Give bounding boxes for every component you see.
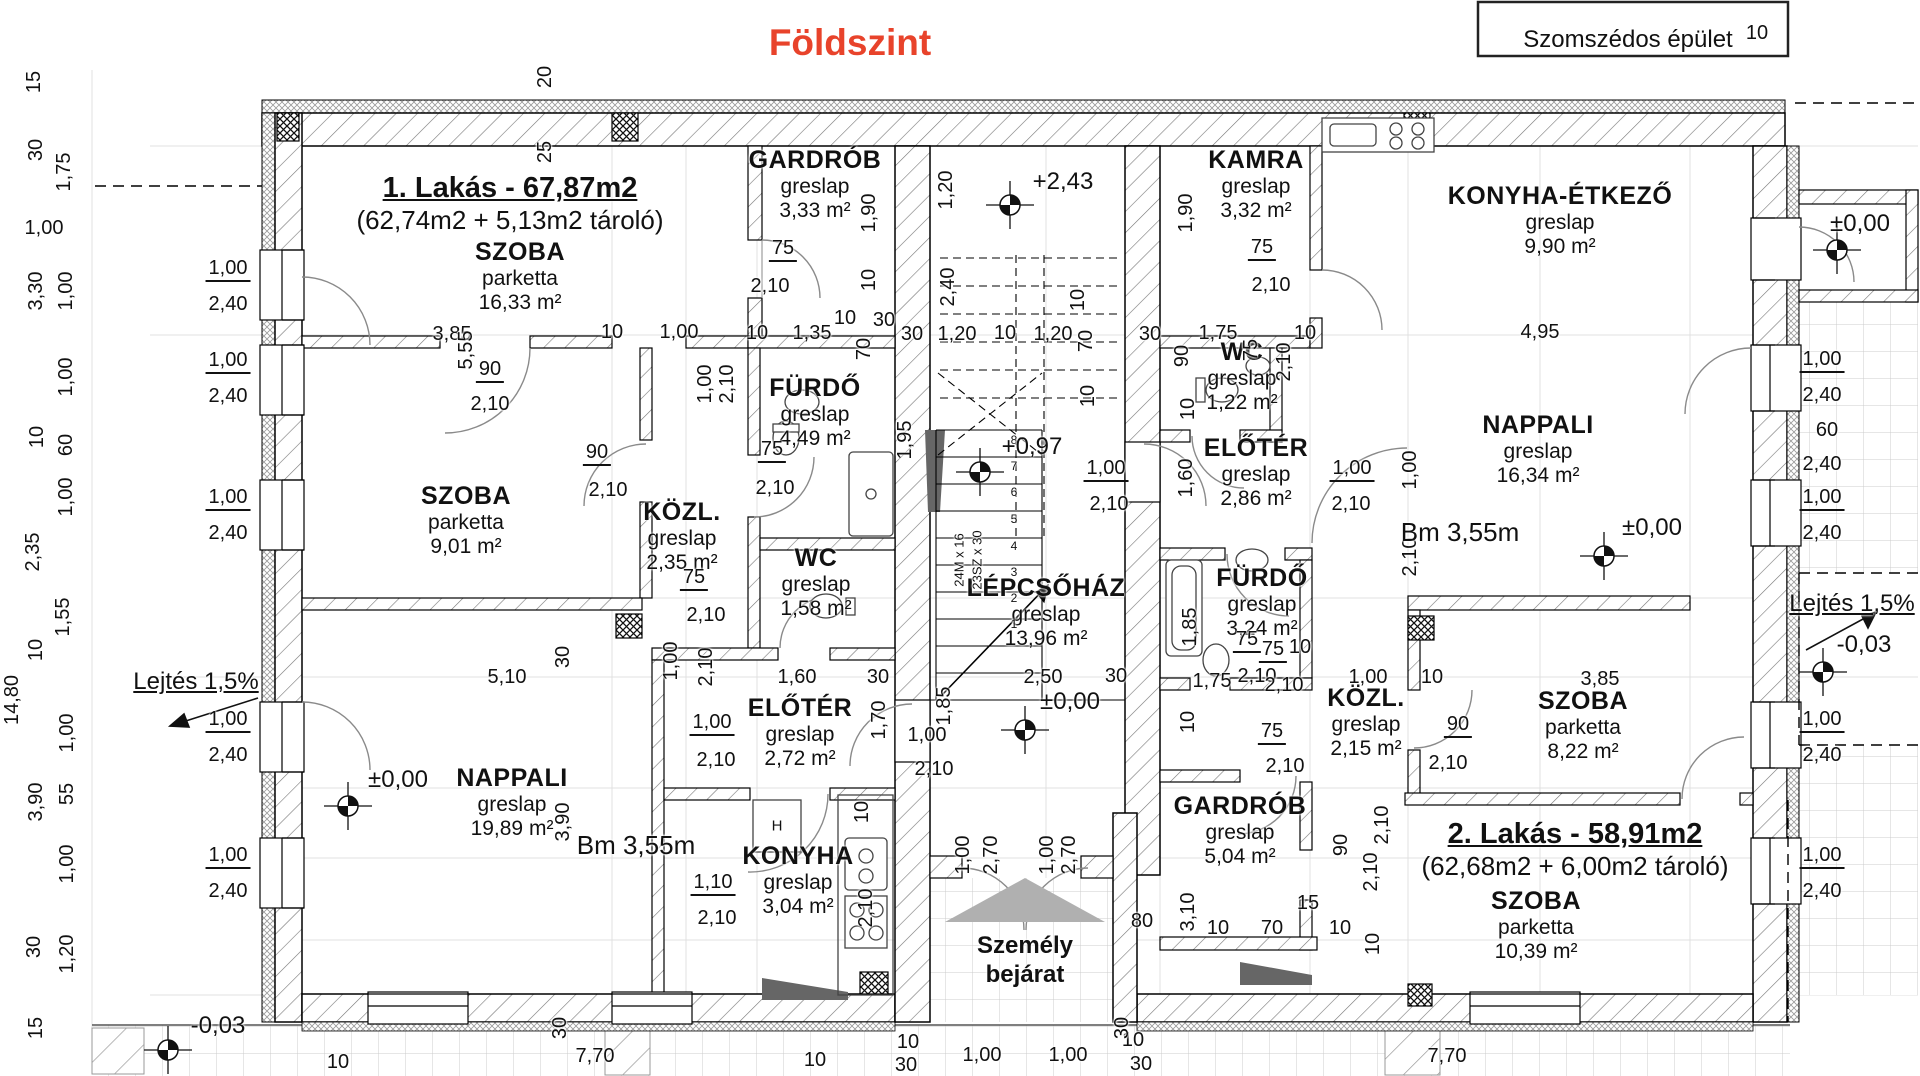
level-label: ±0,00 [368, 766, 428, 794]
slope-label-right: Lejtés 1,5% [1789, 590, 1914, 618]
dim-label: 14,80 [2, 675, 22, 725]
dim-label: 1,85 [1180, 608, 1200, 647]
dim-label: 1,75 [1199, 323, 1238, 343]
dim-label: 20 [535, 66, 555, 88]
dim-label: 15 [26, 1017, 46, 1039]
dim-label: 1,00 [206, 258, 251, 282]
level-label: ±0,00 [1622, 514, 1682, 542]
dim-label: 2,10 [717, 365, 737, 404]
dim-label: 90 [1444, 714, 1472, 738]
dim-label: 55 [57, 783, 77, 805]
slope-label-left: Lejtés 1,5% [133, 668, 258, 696]
apartment-2-detail: (62,68m2 + 6,00m2 tároló) [1421, 851, 1728, 882]
dim-label: 1,00 [1084, 458, 1129, 482]
dim-label: 30 [873, 310, 895, 330]
dim-label: 25 [535, 141, 555, 163]
dim-label: 75 [769, 238, 797, 262]
dim-label: 75 [758, 439, 786, 463]
dim-label: 1,00 [695, 365, 715, 404]
dim-label: 2,10 [1372, 806, 1392, 845]
room-label-szoba: SZOBAparketta8,22 m² [1538, 687, 1628, 764]
dim-label: 7,70 [576, 1046, 615, 1066]
room-label-nappali: NAPPALIgreslap19,89 m² [456, 764, 567, 841]
dim-label: 2,40 [938, 268, 958, 307]
dim-label: 10 [804, 1050, 826, 1070]
room-label-konyha-tkez-: KONYHA-ÉTKEZŐgreslap9,90 m² [1448, 182, 1673, 259]
dim-label: 2,10 [697, 750, 736, 770]
dim-label: 10 [834, 308, 856, 328]
room-label-f-rd-: FÜRDŐgreslap3,24 m² [1216, 564, 1307, 641]
dim-label: 75 [680, 567, 708, 591]
dim-label: 24M x 16 [953, 533, 966, 586]
dim-label: 90 [583, 442, 611, 466]
dim-label: 1,60 [1176, 459, 1196, 498]
dim-label: 30 [550, 1017, 570, 1039]
dim-label: 30 [895, 1055, 917, 1075]
dim-label: 1,00 [25, 218, 64, 238]
apartment-1-detail: (62,74m2 + 5,13m2 tároló) [356, 205, 663, 236]
survey-marker-icon [324, 782, 372, 830]
dim-label: 1,75 [54, 153, 74, 192]
dim-label: 2,10 [1429, 753, 1468, 773]
room-label-nappali: NAPPALIgreslap16,34 m² [1482, 411, 1593, 488]
room-label-szoba: SZOBAparketta9,01 m² [421, 482, 511, 559]
dim-label: 2,10 [1266, 756, 1305, 776]
dim-label: 10 [1294, 323, 1316, 343]
dim-label: 1,90 [859, 194, 879, 233]
dim-label: 30 [1139, 324, 1161, 344]
dim-label: 10 [1068, 289, 1088, 311]
dim-label: 5 [1011, 513, 1018, 525]
dim-label: 2,10 [1090, 494, 1129, 514]
dim-label: 5,55 [456, 331, 476, 370]
dim-label: 70 [854, 338, 874, 360]
dim-label: 1,20 [938, 324, 977, 344]
dim-label: 10 [1078, 385, 1098, 407]
dim-label: 4 [1011, 540, 1018, 552]
dim-label: 1,00 [57, 845, 77, 884]
dim-label: 2 [1011, 592, 1018, 604]
dim-label: 10 [1421, 667, 1443, 687]
dim-label: 30 [1130, 1054, 1152, 1074]
dim-label: 7,70 [1428, 1046, 1467, 1066]
dim-label: 2,10 [856, 889, 876, 928]
dim-label: 4,95 [1521, 322, 1560, 342]
dim-label: 1,00 [57, 714, 77, 753]
dim-label: 75 [1233, 629, 1261, 653]
dim-label: 2,10 [687, 605, 726, 625]
dim-label: 2,10 [589, 480, 628, 500]
level-label: +2,43 [1033, 168, 1094, 196]
dim-label: 90 [476, 359, 504, 383]
dim-label: Bm 3,55m [1401, 519, 1520, 545]
room-label-k-zl-: KÖZL.greslap2,35 m² [643, 498, 721, 575]
dim-label: 1,70 [869, 701, 889, 740]
level-label: ±0,00 [1040, 688, 1100, 716]
dim-label: 2,50 [1024, 667, 1063, 687]
room-label-el-t-r: ELŐTÉRgreslap2,72 m² [748, 694, 852, 771]
dim-label: 1,95 [895, 421, 915, 460]
dim-label: 90 [1172, 345, 1192, 367]
dim-label: 3,85 [1581, 669, 1620, 689]
dim-label: Bm 3,55m [577, 832, 696, 858]
dim-label: 2,10 [756, 478, 795, 498]
dim-label: 10 [852, 801, 872, 823]
dim-label: 10 [1178, 711, 1198, 733]
apartment-1-name: 1. Lakás - 67,87m2 [356, 172, 663, 205]
dim-label: 5,10 [488, 667, 527, 687]
dim-label: 1 [1011, 618, 1018, 630]
dim-label: 60 [56, 434, 76, 456]
dim-label: 15 [24, 71, 44, 93]
dim-label: 1,00 [1049, 1045, 1088, 1065]
room-label-k-zl-: KÖZL.greslap2,15 m² [1327, 684, 1405, 761]
dim-label: 1,00 [1800, 487, 1845, 511]
dim-label: 90 [1331, 834, 1351, 856]
dim-label: 1,00 [56, 478, 76, 517]
dim-label: 1,20 [1034, 324, 1073, 344]
room-label-gardr-b: GARDRÓBgreslap5,04 m² [1174, 792, 1307, 869]
dim-label: 1,00 [1800, 845, 1845, 869]
dim-label: 1,85 [934, 687, 954, 726]
level-label: -0,03 [1837, 631, 1892, 659]
dim-label: 1,00 [1800, 709, 1845, 733]
dim-label: 10 [601, 322, 623, 342]
survey-marker-icon [986, 181, 1034, 229]
level-label: ±0,00 [1830, 210, 1890, 238]
survey-marker-icon [1580, 532, 1628, 580]
dim-label: 1,00 [56, 358, 76, 397]
dim-label: 2,40 [209, 294, 248, 314]
entrance-label: Személy bejárat [977, 932, 1073, 990]
dim-label: 1,00 [1800, 349, 1845, 373]
dim-label: 2,10 [471, 394, 510, 414]
dim-label: 1,55 [53, 598, 73, 637]
room-label-szoba: SZOBAparketta10,39 m² [1491, 887, 1581, 964]
dim-label: 2,40 [1803, 523, 1842, 543]
dim-label: 10 [26, 639, 46, 661]
dim-label: 2,40 [209, 523, 248, 543]
dim-label: 1,00 [1037, 836, 1057, 875]
dim-label: 2,10 [696, 648, 716, 687]
dim-label: 10 [1289, 637, 1311, 657]
dim-label: 10 [1363, 933, 1383, 955]
dim-label: 1,00 [56, 272, 76, 311]
dim-label: 30 [867, 667, 889, 687]
dim-label: 2,10 [1265, 675, 1304, 695]
apartment-2-header: 2. Lakás - 58,91m2 (62,68m2 + 6,00m2 tár… [1421, 818, 1728, 882]
dim-label: 2,40 [1803, 881, 1842, 901]
room-label-wc: WCgreslap1,58 m² [780, 544, 851, 621]
dim-label: 7 [1011, 460, 1018, 472]
dim-label: 70 [1076, 330, 1096, 352]
dim-label: 1,20 [57, 935, 77, 974]
room-label-szoba: SZOBAparketta16,33 m² [475, 238, 565, 315]
dim-label: 75 [1241, 339, 1261, 361]
dim-label: 1,00 [690, 712, 735, 736]
dim-label: 1,00 [1349, 667, 1388, 687]
dim-label: 1,75 [1193, 671, 1232, 691]
dim-label: 10 [1207, 918, 1229, 938]
dim-label: 2,70 [1059, 836, 1079, 875]
dim-label: 2,40 [209, 745, 248, 765]
dim-label: 2,10 [1252, 275, 1291, 295]
dim-label: 2,40 [209, 386, 248, 406]
dim-label: 1,00 [908, 725, 947, 745]
dim-label: 30 [26, 139, 46, 161]
dim-label: 2,70 [981, 836, 1001, 875]
dim-label: 75 [1258, 721, 1286, 745]
dim-label: 2,40 [1803, 454, 1842, 474]
dim-label: 30 [553, 646, 573, 668]
dim-label: 23SZ x 30 [971, 530, 984, 589]
dim-label: 70 [1261, 918, 1283, 938]
dim-label: 80 [1131, 911, 1153, 931]
room-label-l-pcs-h-z: LÉPCSŐHÁZgreslap13,96 m² [967, 574, 1126, 651]
dim-label: 10 [27, 426, 47, 448]
dim-label: 1,35 [793, 323, 832, 343]
dim-label: 1,00 [963, 1045, 1002, 1065]
apartment-2-name: 2. Lakás - 58,91m2 [1421, 818, 1728, 851]
dim-label: 3,90 [26, 783, 46, 822]
dim-label: 1,00 [1400, 451, 1420, 490]
dim-label: 1,00 [953, 836, 973, 875]
dim-label: 10 [1329, 918, 1351, 938]
dim-label: 3,90 [553, 803, 573, 842]
dim-label: 1,00 [661, 642, 681, 681]
dim-label: 10 [994, 323, 1016, 343]
room-label-konyha: KONYHAgreslap3,04 m² [742, 842, 853, 919]
dim-label: 1,10 [691, 872, 736, 896]
dim-label: 3,10 [1178, 893, 1198, 932]
dim-label: 2,10 [1332, 494, 1371, 514]
level-label: -0,03 [191, 1012, 246, 1040]
dim-label: 2,10 [915, 759, 954, 779]
dim-label: 6 [1011, 486, 1018, 498]
dim-label: 30 [901, 324, 923, 344]
dim-label: 2,40 [1803, 745, 1842, 765]
dim-label: 1,00 [206, 487, 251, 511]
dim-label: 10 [1178, 398, 1198, 420]
dim-label: H [772, 819, 783, 834]
dim-label: 2,35 [23, 533, 43, 572]
dim-label: 1,60 [778, 667, 817, 687]
level-label: +0,97 [1002, 433, 1063, 461]
dim-label: 10 [897, 1032, 919, 1052]
dim-label: 3 [1011, 566, 1018, 578]
dim-label: 1,00 [206, 845, 251, 869]
room-label-el-t-r: ELŐTÉRgreslap2,86 m² [1204, 434, 1308, 511]
dim-label: 30 [1105, 666, 1127, 686]
dim-label: 10 [859, 269, 879, 291]
dim-label: 1,00 [206, 709, 251, 733]
dim-label: 2,40 [209, 881, 248, 901]
dim-label: 15 [1297, 893, 1319, 913]
room-label-kamra: KAMRAgreslap3,32 m² [1208, 146, 1304, 223]
floorplan-page: Földszint Szomszédos épület 1. Lakás - 6… [0, 0, 1920, 1076]
dim-label: 75 [1259, 639, 1287, 663]
dim-label: 30 [1112, 1017, 1132, 1039]
dim-label: 30 [24, 936, 44, 958]
neighbor-building-label: Szomszédos épület [1523, 26, 1732, 54]
dim-label: 60 [1816, 420, 1838, 440]
dim-label: 3,30 [26, 272, 46, 311]
page-title: Földszint [769, 22, 931, 64]
dim-label: 75 [1248, 237, 1276, 261]
dim-label: 2,10 [1274, 343, 1294, 382]
dim-label: 2,10 [751, 276, 790, 296]
dim-label: 1,00 [206, 350, 251, 374]
dim-label: 1,00 [660, 322, 699, 342]
dim-label: 1,90 [1176, 194, 1196, 233]
dim-label: 2,10 [698, 908, 737, 928]
dim-label: 2,10 [1361, 853, 1381, 892]
dim-label: 10 [1746, 23, 1768, 43]
dim-label: 1,00 [1330, 458, 1375, 482]
dim-label: 1,20 [936, 171, 956, 210]
survey-marker-icon [956, 448, 1004, 496]
dim-label: 10 [746, 323, 768, 343]
dim-label: 10 [327, 1052, 349, 1072]
kitchen-sink-icon [1330, 124, 1376, 146]
dim-label: 2,40 [1803, 385, 1842, 405]
apartment-1-header: 1. Lakás - 67,87m2 (62,74m2 + 5,13m2 tár… [356, 172, 663, 236]
